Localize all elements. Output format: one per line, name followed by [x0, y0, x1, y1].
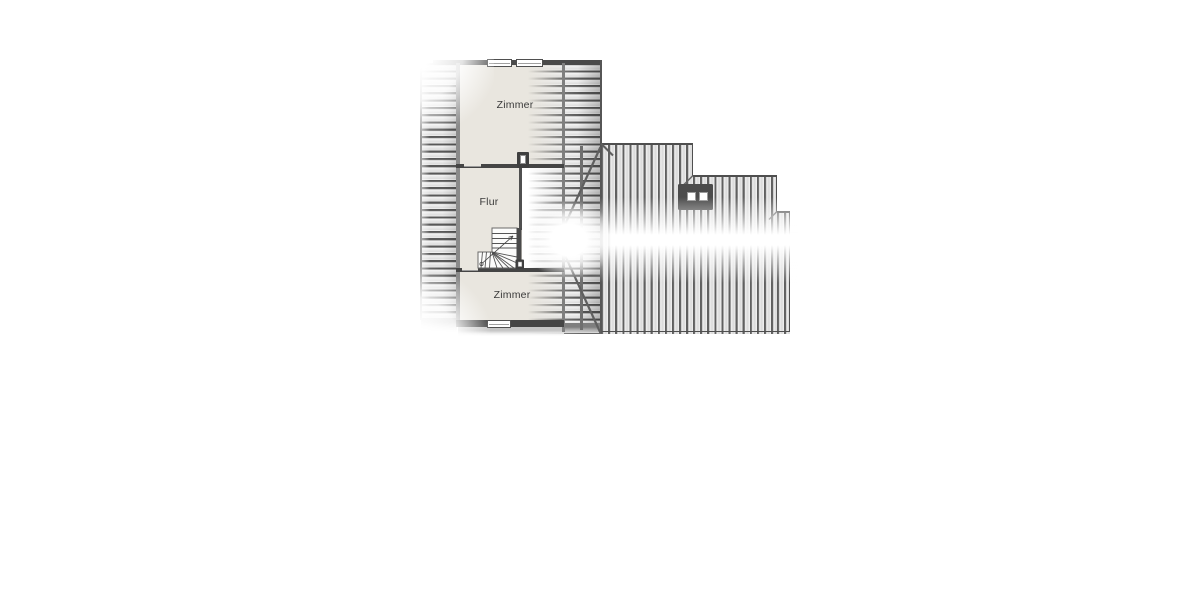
room-label-flur: Flur [480, 196, 499, 208]
floor-plan-canvas: Zimmer Flur Zimmer [0, 0, 1200, 600]
corner-fade-bottom-left [412, 262, 490, 346]
room-label-zimmer-bottom: Zimmer [494, 289, 531, 301]
corner-fade-top-left [412, 50, 494, 142]
room-flur [458, 168, 522, 272]
room-label-zimmer-top: Zimmer [497, 99, 534, 111]
roof-bottom-eave-line [601, 331, 790, 333]
chimney-icon [517, 152, 529, 169]
roof-step-edge-1 [692, 143, 694, 176]
door-opening-zimmer-top [464, 164, 481, 167]
hip-apex-highlight [521, 198, 617, 282]
window-top-2 [516, 59, 543, 68]
chimney-flue [520, 155, 526, 164]
window-bottom-1 [487, 320, 511, 329]
